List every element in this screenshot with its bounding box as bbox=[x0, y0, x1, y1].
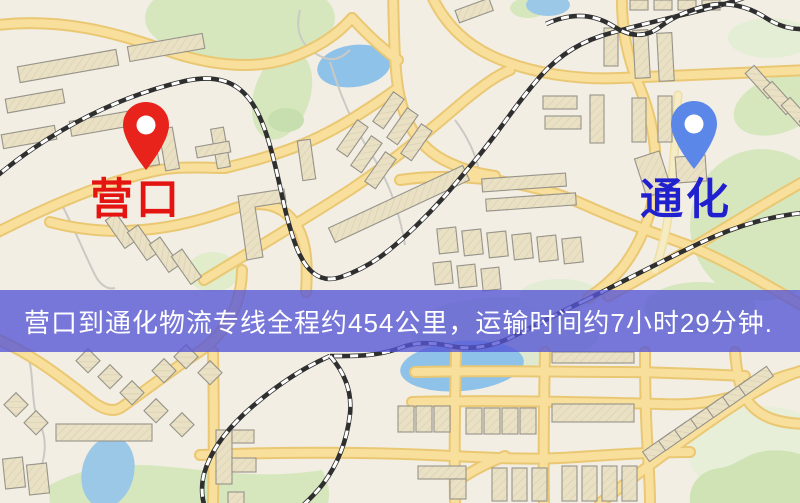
destination-pin-icon[interactable] bbox=[670, 100, 718, 170]
destination-pin-body bbox=[671, 101, 717, 169]
map-screenshot: 营口 通化 营口到通化物流专线全程约454公里，运输时间约7小时29分钟. bbox=[0, 0, 800, 503]
origin-city-label: 营口 bbox=[90, 179, 182, 222]
origin-pin-hole bbox=[137, 116, 156, 135]
destination-pin-hole bbox=[685, 115, 704, 134]
route-info-text: 营口到通化物流专线全程约454公里，运输时间约7小时29分钟. bbox=[24, 303, 773, 340]
origin-pin-body bbox=[123, 102, 169, 170]
destination-city-label: 通化 bbox=[640, 179, 732, 222]
origin-pin-icon[interactable] bbox=[122, 101, 170, 171]
map-canvas[interactable] bbox=[0, 0, 800, 503]
route-info-banner: 营口到通化物流专线全程约454公里，运输时间约7小时29分钟. bbox=[0, 290, 800, 352]
